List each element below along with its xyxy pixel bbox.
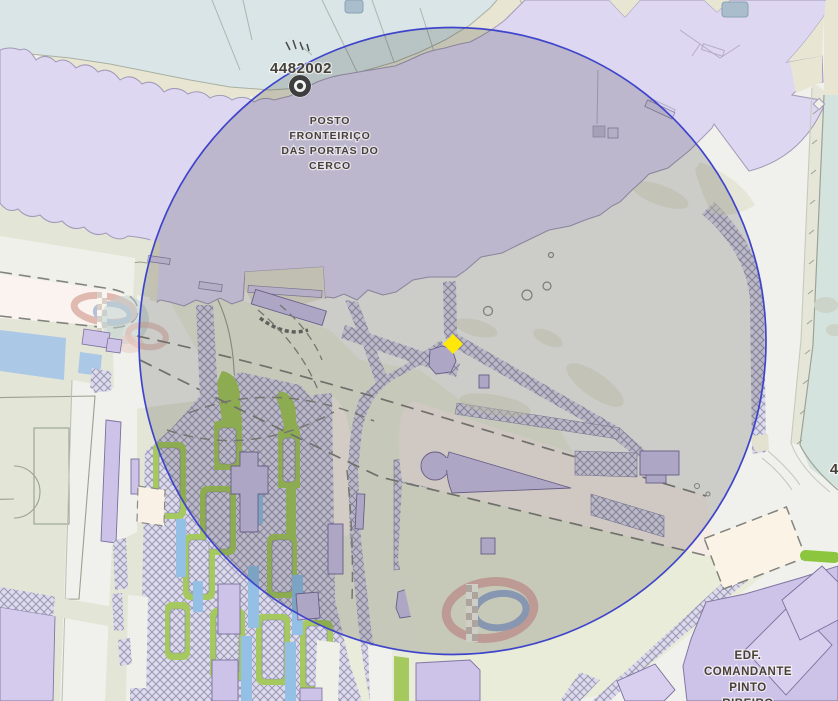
svg-text:FRONTEIRIÇO: FRONTEIRIÇO (289, 130, 370, 142)
svg-text:PINTO: PINTO (729, 682, 766, 694)
svg-text:EDF.: EDF. (735, 650, 762, 662)
svg-text:CERCO: CERCO (309, 160, 351, 172)
svg-text:DAS PORTAS DO: DAS PORTAS DO (281, 145, 378, 157)
svg-text:COMANDANTE: COMANDANTE (704, 666, 792, 678)
svg-text:4482002: 4482002 (270, 60, 332, 77)
svg-text:POSTO: POSTO (310, 115, 351, 127)
svg-text:4: 4 (830, 461, 838, 478)
